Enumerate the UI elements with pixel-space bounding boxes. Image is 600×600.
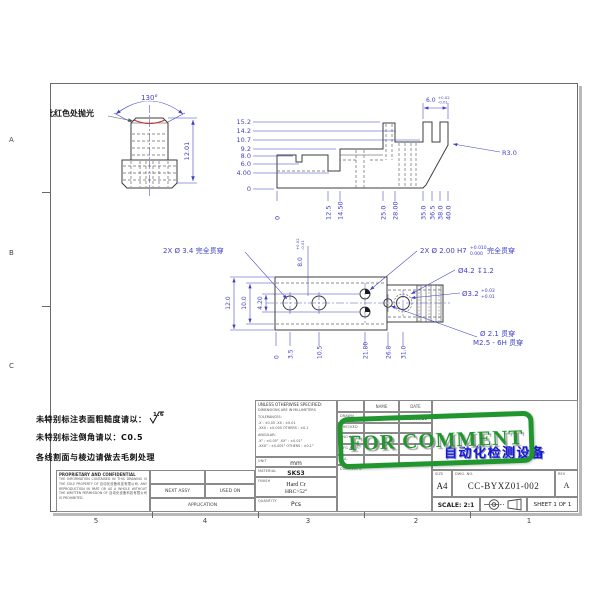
bore-32-tol-lower: +0.01 bbox=[481, 294, 495, 300]
dwg-no-cell: DWG. NO. CC-BYXZ01-002 bbox=[452, 470, 555, 497]
zone-number-3: 3 bbox=[303, 517, 313, 525]
projection-cell bbox=[480, 497, 527, 512]
proprietary-box: PROPRIETARY AND CONFIDENTIAL THE INFORMA… bbox=[56, 470, 150, 512]
used-on-value-cell bbox=[205, 470, 255, 484]
for-comment-stamp: FOR COMMENT bbox=[337, 411, 535, 470]
side-width-value: 6.0 bbox=[426, 97, 436, 104]
note-roughness: 未特别标注表面粗糙度请以：1.6 bbox=[36, 410, 165, 425]
ordinate-label: 14.50 bbox=[337, 201, 345, 220]
side-view-geometry bbox=[277, 122, 448, 188]
plan-ord-8: 8.0 bbox=[297, 257, 304, 267]
proprietary-body: THE INFORMATION CONTAINED IN THIS DRAWIN… bbox=[59, 477, 147, 501]
ordinate-label: 0 bbox=[274, 216, 282, 220]
holes-200-tol-lower: 0.000 bbox=[470, 251, 483, 257]
finish-value-2: HRC>52° bbox=[256, 489, 336, 495]
bore-32-leader bbox=[411, 293, 460, 298]
radius-leader bbox=[453, 144, 500, 152]
ordinate-label: 21.80 bbox=[363, 342, 370, 359]
cbore-leader bbox=[411, 270, 455, 294]
radius-label: R3.0 bbox=[502, 149, 517, 157]
engineering-drawing-sheet: A B C 5 4 3 2 1 bbox=[0, 0, 600, 600]
ordinate-label: 14.2 bbox=[237, 127, 251, 135]
ordinate-label: 0 bbox=[247, 185, 251, 193]
material-value: SKS3 bbox=[256, 470, 336, 477]
zone-number-1: 1 bbox=[524, 517, 534, 525]
plan-centerlines bbox=[266, 283, 450, 323]
plan-view-geometry bbox=[275, 277, 443, 330]
side-width-tol-lower: -0.01 bbox=[438, 100, 448, 105]
holes-200-suffix: 完全贯穿 bbox=[487, 246, 515, 255]
cbore-label: Ø4.2 ↧1.2 bbox=[458, 267, 494, 275]
side-bottom-ordinates: 0 12.5 14.50 25.0 28.00 35.0 36.5 38.0 4… bbox=[274, 201, 453, 220]
note-chamfer: 未特别标注倒角请以：C0.5 bbox=[36, 432, 143, 443]
zone-number-4: 4 bbox=[200, 517, 210, 525]
stamp-text: FOR COMMENT bbox=[348, 424, 524, 455]
tolerance-box: UNLESS OTHERWISE SPECIFIED: DIMENSIONS A… bbox=[255, 400, 337, 457]
roughness-value: 1.6 bbox=[153, 412, 164, 418]
next-assy-cell: NEXT ASSY bbox=[150, 484, 205, 498]
rev-value: A bbox=[556, 481, 577, 490]
zone-tick bbox=[42, 306, 50, 307]
ordinate-label: 28.00 bbox=[392, 201, 400, 220]
ordinate-label: 35.0 bbox=[420, 206, 428, 220]
sheet-shadow-right bbox=[579, 86, 582, 515]
next-assy-value-cell bbox=[150, 470, 205, 484]
zone-number-2: 2 bbox=[411, 517, 421, 525]
ordinate-label: 15.2 bbox=[237, 118, 251, 126]
size-label: SIZE bbox=[435, 472, 443, 476]
zone-tick bbox=[364, 512, 365, 518]
name-column-header: NAME bbox=[364, 400, 399, 412]
finish-cell: FINISH Hard Cr HRC>52° bbox=[255, 477, 337, 497]
holes-200-label: 2X Ø 2.00 H7 bbox=[420, 247, 467, 255]
bore-32-label: Ø3.2 bbox=[462, 290, 479, 298]
front-height-dim: 12.01 bbox=[183, 142, 191, 161]
ordinate-label: 26.8 bbox=[386, 345, 393, 359]
polish-note: 此红色处抛光 bbox=[50, 108, 94, 118]
name-header-label: NAME bbox=[365, 404, 398, 409]
comments-cell: COMMENTS: bbox=[337, 465, 432, 512]
holes-200-tol-upper: +0.010 bbox=[470, 245, 487, 251]
dwg-no-label: DWG. NO. bbox=[455, 472, 474, 476]
front-angle-dim: 130° bbox=[141, 94, 158, 102]
plan-dim-12: 12.0 bbox=[225, 296, 232, 310]
used-on-label: USED ON bbox=[206, 489, 254, 494]
ordinate-label: 40.0 bbox=[445, 206, 453, 220]
ordinate-label: 10.7 bbox=[237, 136, 251, 144]
zone-tick bbox=[42, 192, 50, 193]
note-roughness-text: 未特别标注表面粗糙度请以： bbox=[36, 415, 147, 424]
plan-dim-10: 10.0 bbox=[241, 296, 248, 310]
zone-tick bbox=[470, 512, 471, 518]
ordinate-label: 4.00 bbox=[237, 169, 251, 177]
zone-letter-c: C bbox=[9, 362, 14, 370]
ordinate-label: 8.0 bbox=[241, 152, 251, 160]
dimensions-in: DIMENSIONS ARE IN MILLIMETERS bbox=[258, 408, 334, 413]
holes-34-leader bbox=[245, 252, 287, 299]
tolerance-line: .XXX : ±0.005 OTHERS : ±0.1 bbox=[258, 426, 334, 431]
ordinate-label: 3.5 bbox=[288, 349, 295, 359]
unit-cell: UNIT mm bbox=[255, 457, 337, 467]
zone-letter-a: A bbox=[9, 136, 14, 144]
scale-cell: SCALE: 2:1 bbox=[432, 497, 480, 512]
sheet-value: SHEET 1 OF 1 bbox=[528, 502, 577, 508]
plan-dim-420: 4.20 bbox=[257, 296, 264, 310]
ordinate-label: 12.5 bbox=[325, 206, 333, 220]
zone-letter-b: B bbox=[9, 249, 14, 257]
thread-label-1: Ø 2.1 贯穿 bbox=[480, 329, 515, 338]
quantity-cell: QUANTITY Pcs bbox=[255, 497, 337, 512]
quantity-value: Pcs bbox=[256, 501, 336, 508]
third-angle-projection-icon bbox=[481, 498, 526, 511]
side-left-ordinates: 15.2 14.2 10.7 9.2 8.0 6.0 4.00 0 bbox=[237, 118, 251, 193]
holes-34-label: 2X Ø 3.4 完全贯穿 bbox=[163, 246, 224, 255]
material-cell: MATERIAL SKS3 bbox=[255, 467, 337, 477]
date-column-header: DATE bbox=[399, 400, 432, 412]
ordinate-label: 10.5 bbox=[317, 345, 324, 359]
drawing-views: 130° 12.01 此红色处抛光 15.2 14.2 10.7 9.2 8.0… bbox=[50, 83, 578, 400]
holes-200-leader bbox=[370, 251, 417, 290]
sheet-cell: SHEET 1 OF 1 bbox=[527, 497, 578, 512]
next-assy-label: NEXT ASSY bbox=[151, 489, 204, 494]
plan-ord-8-tol-lower: -0.01 bbox=[300, 240, 305, 250]
ordinate-label: 25.0 bbox=[380, 206, 388, 220]
side-view-ordinate-leaders bbox=[253, 122, 448, 201]
date-header-label: DATE bbox=[400, 404, 431, 409]
ordinate-label: 0 bbox=[274, 355, 281, 359]
used-on-cell: USED ON bbox=[205, 484, 255, 498]
rev-cell: REV A bbox=[555, 470, 578, 497]
zone-number-5: 5 bbox=[91, 517, 101, 525]
ordinate-label: 36.5 bbox=[429, 206, 437, 220]
finish-value-1: Hard Cr bbox=[256, 482, 336, 488]
ordinate-label: 31.0 bbox=[401, 345, 408, 359]
surface-roughness-icon: 1.6 bbox=[147, 410, 165, 425]
sheet-shadow-bottom bbox=[53, 513, 582, 516]
bore-32-tol-upper: +0.03 bbox=[481, 288, 495, 294]
unit-value: mm bbox=[256, 460, 336, 467]
zone-tick bbox=[258, 512, 259, 518]
size-value: A4 bbox=[433, 481, 451, 491]
size-cell: SIZE A4 bbox=[432, 470, 452, 497]
approval-header-spacer bbox=[337, 400, 364, 412]
ordinate-label: 38.0 bbox=[437, 206, 445, 220]
plan-bottom-ordinates: 0 3.5 10.5 21.80 26.8 31.0 bbox=[274, 342, 408, 359]
note-deburr: 各线割面与棱边请做去毛刺处理 bbox=[36, 452, 155, 463]
dwg-no-value: CC-BYXZ01-002 bbox=[453, 481, 554, 491]
application-label: APPLICATION bbox=[151, 503, 254, 508]
rev-label: REV bbox=[558, 472, 565, 476]
application-cell: APPLICATION bbox=[150, 498, 255, 512]
thread-label-2: M2.5 - 6H 贯穿 bbox=[473, 338, 523, 347]
angular-line: .XXX° : ±0.005° OTHERS : ±0.1° bbox=[258, 444, 334, 449]
scale-value: SCALE: 2:1 bbox=[433, 502, 479, 509]
ordinate-label: 6.0 bbox=[241, 160, 251, 168]
zone-tick bbox=[152, 512, 153, 518]
side-width-dim bbox=[423, 103, 448, 119]
